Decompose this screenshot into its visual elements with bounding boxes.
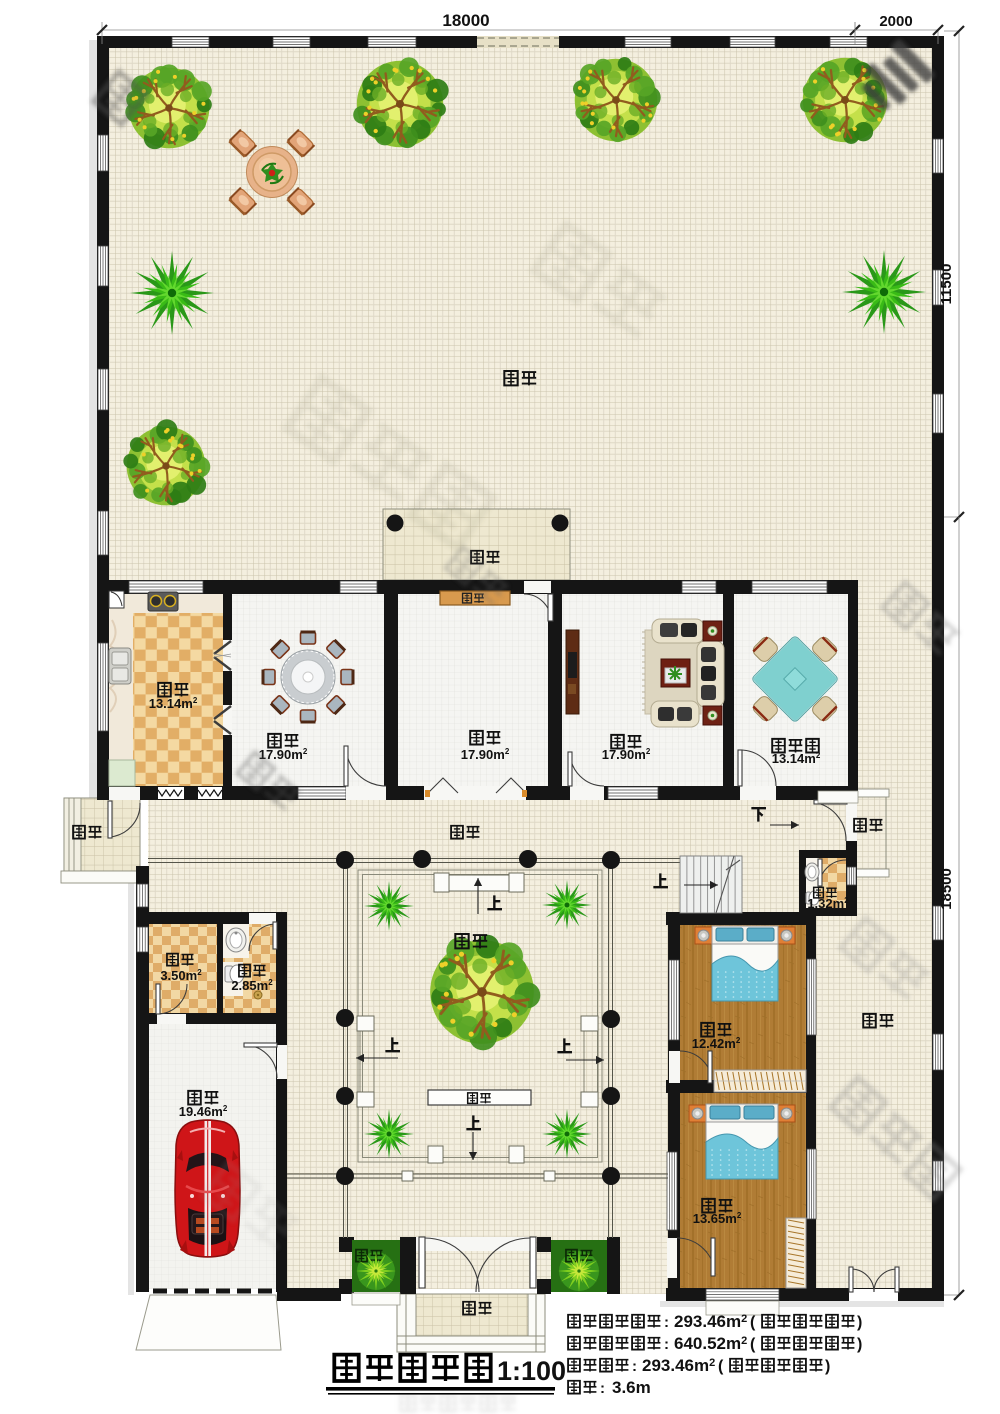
- svg-text:293.46m2: 293.46m2: [642, 1356, 715, 1375]
- svg-text:1:100: 1:100: [497, 1356, 566, 1386]
- svg-text:(: (: [718, 1358, 724, 1375]
- svg-text:293.46m2: 293.46m2: [674, 1312, 747, 1331]
- svg-text:2000: 2000: [879, 13, 912, 30]
- svg-text::: :: [632, 1358, 637, 1375]
- svg-text:12.42m2: 12.42m2: [692, 1036, 741, 1051]
- svg-text:(: (: [750, 1314, 756, 1331]
- svg-text:13.65m2: 13.65m2: [693, 1211, 742, 1226]
- svg-text:11500: 11500: [938, 264, 955, 305]
- svg-text:18500: 18500: [938, 868, 955, 910]
- svg-text:13.14m2: 13.14m2: [772, 751, 821, 766]
- svg-text::: :: [664, 1314, 669, 1331]
- svg-text:(: (: [750, 1336, 756, 1353]
- svg-text:19.46m2: 19.46m2: [179, 1104, 228, 1119]
- svg-text::: :: [600, 1380, 605, 1397]
- svg-text:640.52m2: 640.52m2: [674, 1334, 747, 1353]
- svg-text:3.6m: 3.6m: [612, 1378, 651, 1397]
- svg-text:17.90m2: 17.90m2: [461, 747, 510, 762]
- svg-text:2.85m2: 2.85m2: [231, 978, 273, 993]
- svg-text:13.14m2: 13.14m2: [149, 696, 198, 711]
- svg-text:): ): [857, 1314, 862, 1331]
- svg-text:): ): [825, 1358, 830, 1375]
- svg-text:17.90m2: 17.90m2: [602, 747, 651, 762]
- svg-text:3.50m2: 3.50m2: [160, 968, 202, 983]
- svg-text:18000: 18000: [442, 11, 489, 30]
- svg-text:1.32m2: 1.32m2: [807, 896, 849, 911]
- svg-text:): ): [857, 1336, 862, 1353]
- svg-text::: :: [664, 1336, 669, 1353]
